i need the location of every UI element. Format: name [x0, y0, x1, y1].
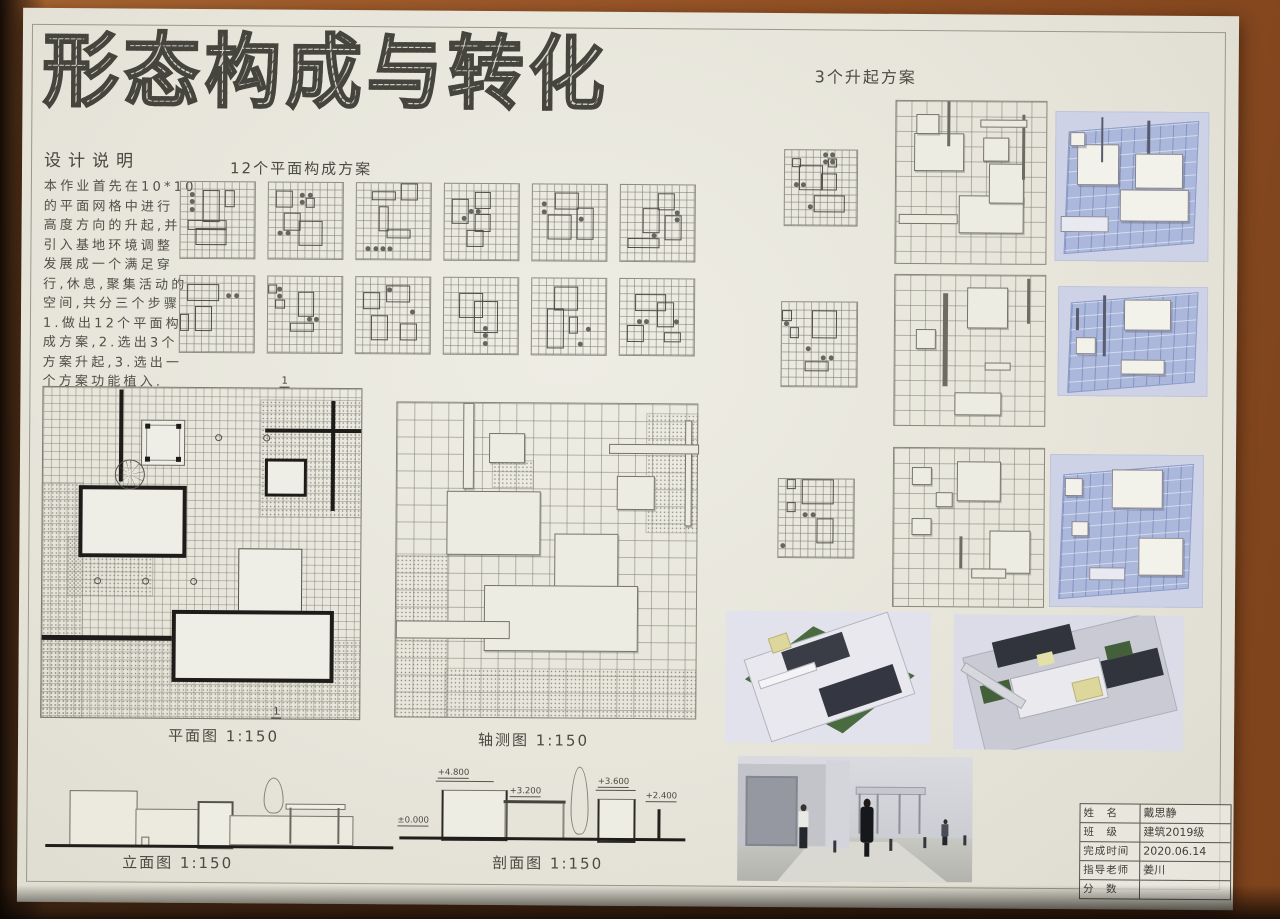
plan-view-label: 平面图 1:150	[168, 725, 279, 747]
scheme-rect	[812, 311, 837, 338]
scheme-dot	[784, 321, 789, 326]
plan-column	[215, 434, 222, 441]
plan-scheme-grid	[531, 277, 608, 356]
scheme-rect	[290, 322, 314, 332]
scheme-dot	[806, 346, 811, 351]
plan-room	[265, 458, 307, 496]
scheme-dot	[586, 326, 591, 331]
rise-scheme-plan-grid	[781, 301, 859, 388]
axon-bar	[396, 620, 510, 639]
volume-pole	[959, 537, 962, 569]
scheme-rect	[657, 302, 674, 327]
volume-box	[1121, 359, 1165, 374]
plan-spiral-stair	[115, 459, 145, 489]
scheme-rect	[195, 228, 227, 245]
scheme-dot	[542, 201, 547, 206]
axon-bar	[609, 444, 699, 455]
section-cut-marker: 1	[279, 376, 289, 388]
scheme-rect	[643, 208, 660, 233]
scheme-rect	[555, 192, 579, 209]
pergola-post	[918, 794, 920, 834]
bollard	[833, 840, 836, 852]
presentation-board: 形态构成与转化 3个升起方案 设计说明 本作业首先在10*10 的平面网格中进行…	[17, 8, 1239, 910]
scheme-dot	[234, 293, 239, 298]
scheme-dot	[637, 319, 642, 324]
scheme-dot	[190, 191, 195, 196]
rise-scheme-axon-sketch	[893, 274, 1046, 427]
volume-box	[967, 287, 1008, 328]
plan-scheme-grid	[443, 183, 520, 262]
scheme-rect	[547, 215, 571, 240]
pergola-post	[898, 794, 900, 834]
plan-scheme-grid	[179, 181, 256, 260]
volume-box	[914, 133, 964, 171]
rise-scheme-plan-grid	[777, 478, 855, 559]
scheme-rect	[569, 317, 579, 334]
render-wall	[825, 760, 850, 848]
section-post	[657, 809, 660, 840]
plan-room	[78, 485, 187, 558]
axon-slab	[685, 420, 693, 526]
scheme-rect	[386, 229, 410, 239]
scheme-dot	[277, 286, 282, 291]
rise-scheme-plan-grid	[784, 149, 859, 227]
scheme-dot	[190, 207, 195, 212]
scheme-dot	[314, 317, 319, 322]
plan-scheme-grid	[355, 276, 432, 355]
volume-box	[1111, 470, 1163, 509]
volume-box	[1065, 479, 1083, 496]
plan-scheme-grid	[355, 182, 432, 261]
volume-box	[936, 492, 953, 507]
title-char: 转	[447, 26, 524, 122]
volume-pole	[1103, 295, 1106, 357]
scheme-dot	[808, 205, 813, 210]
perspective-render	[737, 756, 973, 883]
scheme-dot	[277, 294, 282, 299]
title-char: 成	[285, 25, 362, 121]
scheme-dot	[410, 310, 415, 315]
scheme-dot	[674, 218, 679, 223]
rise-scheme-axon-sketch	[894, 100, 1047, 265]
elevation-post	[337, 808, 339, 844]
section-level-label: +3.600	[598, 777, 630, 788]
axon-view-label: 轴测图 1:150	[478, 729, 589, 751]
scheme-dot	[469, 209, 474, 214]
scheme-dot	[388, 246, 393, 251]
model-photo-aerial-1	[725, 611, 931, 744]
rise-scheme-render	[1049, 454, 1204, 608]
design-notes-heading: 设计说明	[44, 146, 214, 172]
scheme-dot	[674, 319, 679, 324]
floor-plan-drawing: 1 1	[40, 386, 362, 720]
volume-pole	[947, 101, 950, 146]
scheme-rect	[789, 327, 799, 337]
row-value: 2020.06.14	[1140, 843, 1230, 862]
scheme-rect	[371, 315, 388, 340]
scheme-dot	[829, 355, 834, 360]
scheme-dot	[483, 325, 488, 330]
scheme-dot	[823, 160, 828, 165]
scheme-rect	[658, 193, 675, 210]
scheme-dot	[821, 355, 826, 360]
section-post	[562, 804, 564, 840]
volume-box	[1124, 300, 1171, 331]
scheme-rect	[268, 284, 277, 294]
scheme-rect	[306, 198, 315, 208]
board-title: 形态构成与转化	[42, 26, 610, 120]
scheme-rect	[379, 206, 389, 231]
scheme-dot	[674, 210, 679, 215]
scheme-dot	[226, 293, 231, 298]
render-door	[745, 776, 797, 846]
rise-scheme-axon-sketch	[892, 447, 1045, 608]
volume-pole	[943, 293, 948, 386]
table-row: 班 级 建筑2019级	[1080, 823, 1230, 843]
elevation-drawing	[45, 774, 394, 854]
plan-scheme-grid	[619, 184, 696, 263]
volume-box	[916, 329, 936, 349]
section-slab	[504, 800, 566, 803]
bottom-shadow	[0, 885, 1280, 919]
volume-box	[989, 163, 1024, 204]
volume-hbar	[1061, 216, 1109, 232]
scheme-rect	[372, 191, 396, 201]
rise-scheme-render	[1054, 111, 1209, 262]
row-label: 完成时间	[1080, 842, 1140, 860]
plan-scheme-grid	[267, 275, 344, 354]
render-building	[737, 764, 832, 847]
section-level-label: +2.400	[646, 791, 678, 802]
pergola-post	[876, 794, 878, 834]
plan-wall	[42, 635, 176, 641]
scheme-rect	[298, 292, 315, 317]
scheme-rect	[782, 310, 792, 320]
render-pergola-roof	[856, 787, 926, 795]
axon-volume	[446, 491, 540, 556]
scheme-rect	[203, 190, 220, 223]
row-value: 建筑2019级	[1140, 824, 1230, 843]
elevation-volume	[69, 790, 137, 846]
scheme-dot	[285, 230, 290, 235]
section-tree	[570, 767, 588, 835]
plan-pavilion	[141, 420, 185, 466]
volume-hbar	[899, 214, 958, 225]
volume-box	[916, 114, 939, 134]
scheme-rect	[814, 195, 845, 212]
scheme-dot	[373, 246, 378, 251]
section-level-label: +4.800	[438, 768, 470, 779]
row-value: 姜川	[1140, 862, 1230, 881]
table-row: 完成时间 2020.06.14	[1080, 842, 1230, 862]
title-char: 与	[366, 25, 443, 121]
person-figure	[797, 804, 809, 848]
scheme-dot	[780, 543, 785, 548]
volume-box	[1139, 537, 1184, 576]
volume-pole	[1148, 121, 1151, 154]
volume-box	[911, 517, 931, 535]
volume-hbar	[980, 119, 1027, 128]
plan-room	[171, 610, 333, 683]
row-label: 姓 名	[1080, 804, 1140, 822]
model-photo-aerial-2	[953, 614, 1184, 751]
scheme-dot	[476, 209, 481, 214]
bollard	[923, 837, 926, 848]
scheme-dot	[300, 192, 305, 197]
scheme-dot	[461, 216, 466, 221]
plan-scheme-grid	[619, 278, 696, 357]
scheme-rect	[801, 479, 833, 505]
scheme-dot	[652, 233, 657, 238]
section-datum-label: ±0.000	[397, 815, 429, 826]
axon-paving	[445, 669, 695, 719]
elevation-post	[289, 808, 291, 844]
plan-column	[142, 578, 149, 585]
axon-paving	[493, 461, 533, 487]
volume-box	[1076, 144, 1118, 185]
table-row: 指导老师 姜川	[1080, 861, 1230, 881]
volume-box	[983, 137, 1009, 162]
scheme-rect	[786, 479, 796, 489]
scheme-rect	[401, 183, 418, 200]
scheme-dot	[300, 200, 305, 205]
elevation-view-label: 立面图 1:150	[122, 851, 233, 873]
section-drawing: ±0.000 +4.800 +3.200 +3.600 +2.400	[397, 763, 688, 857]
scheme-dot	[810, 512, 815, 517]
scheme-dot	[578, 341, 583, 346]
volume-box	[1135, 154, 1183, 189]
plan-schemes-label: 12个平面构成方案	[230, 157, 372, 179]
scheme-dot	[644, 319, 649, 324]
elevation-portal	[197, 801, 233, 849]
scheme-rect	[821, 173, 838, 190]
volume-box	[1071, 521, 1088, 535]
scheme-rect	[276, 190, 293, 207]
bollard	[963, 835, 966, 845]
title-char: 化	[528, 27, 605, 123]
plan-column	[263, 434, 270, 441]
scheme-rect	[474, 192, 491, 209]
scheme-rect	[577, 207, 594, 240]
scheme-rect	[554, 286, 578, 311]
scheme-rect	[187, 284, 219, 301]
scheme-dot	[823, 152, 828, 157]
section-volume	[441, 790, 507, 841]
plan-scheme-grid	[179, 275, 256, 354]
scheme-rect	[664, 332, 681, 342]
volume-box	[954, 392, 1001, 415]
scheme-dot	[307, 317, 312, 322]
row-label: 指导老师	[1080, 861, 1140, 879]
scheme-rect	[786, 502, 796, 512]
volume-pole	[1076, 308, 1079, 330]
plan-column	[94, 577, 101, 584]
volume-hbar	[971, 568, 1006, 578]
scheme-rect	[467, 229, 484, 246]
axon-volume	[617, 476, 655, 510]
volume-box	[989, 531, 1030, 574]
volume-box	[1076, 337, 1096, 355]
scheme-rect	[816, 518, 833, 544]
design-notes-line: 方案升起,3.选出一	[43, 352, 213, 373]
scheme-rect	[275, 299, 284, 309]
plan-room	[238, 548, 302, 614]
plan-column	[190, 578, 197, 585]
scheme-dot	[794, 182, 799, 187]
level-leader-line	[436, 781, 494, 782]
scheme-dot	[483, 341, 488, 346]
section-post	[504, 803, 506, 839]
scheme-dot	[366, 246, 371, 251]
scheme-rect	[195, 306, 212, 331]
scheme-rect	[628, 238, 660, 248]
scheme-dot	[803, 512, 808, 517]
section-cut-marker: 1	[271, 707, 281, 719]
person-figure	[941, 819, 949, 845]
axon-volume	[489, 433, 525, 463]
scheme-dot	[830, 152, 835, 157]
volume-pole	[1027, 279, 1030, 324]
volume-box	[957, 461, 1001, 501]
scheme-rect	[665, 216, 682, 241]
plan-scheme-grid	[443, 277, 520, 356]
person-figure	[859, 799, 874, 857]
row-value: 戴思静	[1140, 805, 1230, 824]
plan-wall	[331, 401, 336, 511]
volume-hbar	[985, 362, 1011, 370]
plan-wall	[265, 428, 361, 433]
scheme-dot	[542, 209, 547, 214]
elevation-tree	[264, 777, 284, 813]
axonometric-drawing	[394, 401, 698, 719]
scheme-dot	[278, 230, 283, 235]
section-view-label: 剖面图 1:150	[492, 852, 603, 874]
volume-hbar	[1089, 567, 1125, 580]
plan-scheme-grid	[531, 183, 608, 262]
scheme-rect	[400, 323, 417, 340]
rise-schemes-label: 3个升起方案	[815, 63, 917, 88]
scheme-rect	[363, 292, 380, 309]
scheme-rect	[225, 190, 235, 207]
plan-scheme-grid	[267, 181, 344, 260]
level-leader-line	[596, 790, 636, 791]
table-row: 姓 名 戴思静	[1080, 804, 1230, 824]
title-char: 形	[42, 23, 119, 119]
axon-volume	[484, 585, 638, 652]
scheme-rect	[627, 325, 644, 342]
scheme-dot	[308, 192, 313, 197]
section-level-label: +3.200	[510, 786, 542, 797]
title-char: 态	[123, 24, 200, 120]
row-label: 班 级	[1080, 823, 1140, 841]
volume-box	[1119, 189, 1189, 221]
scheme-rect	[804, 361, 829, 372]
volume-box	[1071, 132, 1085, 146]
scheme-rect	[180, 314, 190, 331]
bollard	[889, 839, 892, 851]
scheme-rect	[298, 221, 322, 246]
axon-slab	[463, 403, 475, 489]
scheme-dot	[483, 333, 488, 338]
scheme-dot	[380, 246, 385, 251]
rise-scheme-render	[1057, 286, 1208, 397]
scheme-rect	[547, 309, 564, 349]
scheme-rect	[452, 199, 469, 224]
scheme-dot	[190, 199, 195, 204]
volume-pole	[1101, 117, 1104, 162]
volume-box	[912, 467, 932, 485]
section-volume	[597, 799, 635, 843]
title-char: 构	[204, 24, 281, 120]
